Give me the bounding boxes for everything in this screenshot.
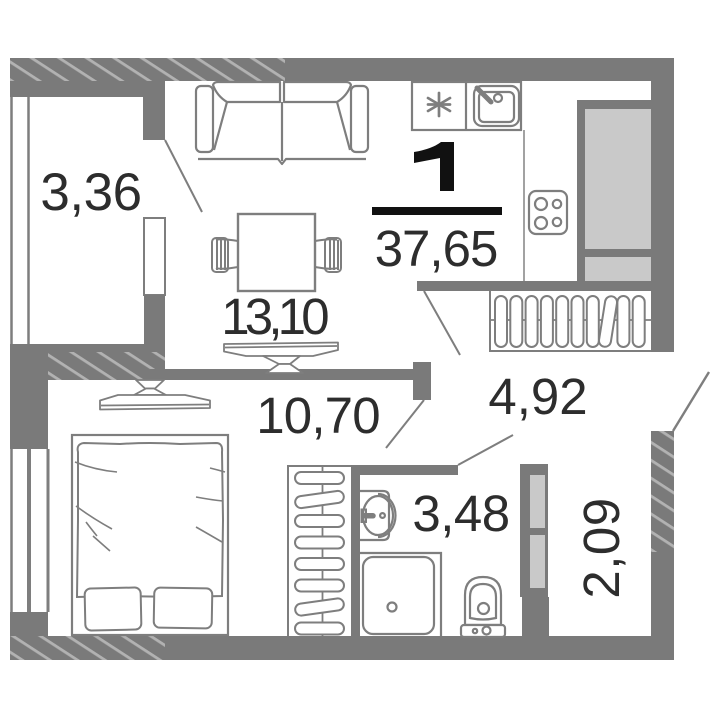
svg-text:3,48: 3,48 <box>412 485 509 542</box>
svg-text:4,92: 4,92 <box>488 368 587 425</box>
svg-text:10,70: 10,70 <box>256 387 380 444</box>
svg-text:37,65: 37,65 <box>375 220 498 277</box>
svg-text:2,09: 2,09 <box>573 497 630 598</box>
svg-text:3,36: 3,36 <box>40 163 141 222</box>
svg-text:13,10: 13,10 <box>221 288 328 345</box>
